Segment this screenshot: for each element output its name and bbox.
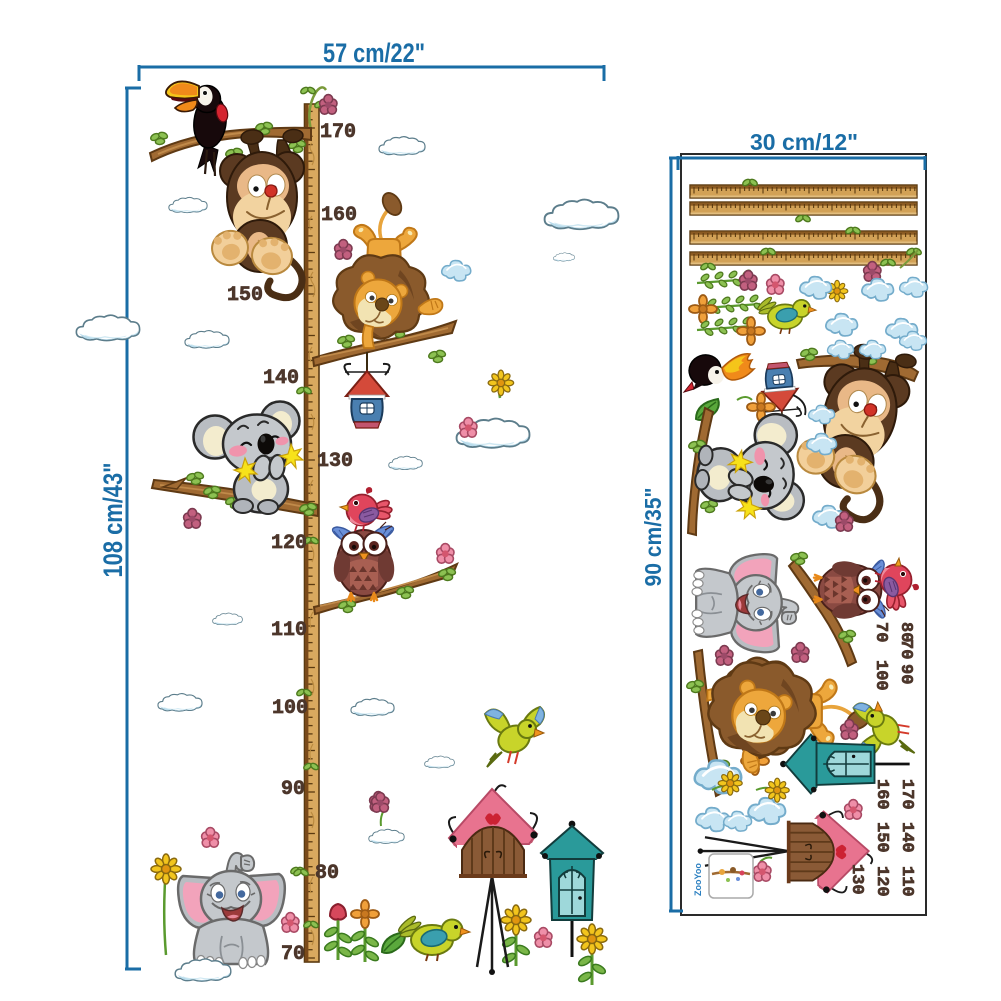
svg-text:120: 120 (872, 866, 891, 897)
svg-text:150: 150 (872, 822, 891, 853)
svg-text:130: 130 (317, 450, 353, 473)
svg-text:120: 120 (271, 532, 307, 555)
svg-text:110: 110 (897, 866, 916, 897)
svg-text:140: 140 (263, 367, 299, 390)
svg-text:ZooYoo: ZooYoo (693, 863, 703, 896)
svg-text:100: 100 (871, 660, 890, 691)
svg-text:80: 80 (315, 862, 339, 885)
svg-text:100: 100 (272, 697, 308, 720)
svg-text:150: 150 (227, 284, 263, 307)
svg-text:140: 140 (897, 822, 916, 853)
svg-text:70: 70 (871, 622, 890, 642)
svg-text:110: 110 (271, 619, 307, 642)
svg-text:90 cm/35": 90 cm/35" (640, 488, 666, 587)
svg-text:170: 170 (320, 121, 356, 144)
svg-text:90: 90 (281, 778, 305, 801)
svg-text:57 cm/22": 57 cm/22" (323, 38, 425, 68)
svg-text:30 cm/12": 30 cm/12" (750, 129, 858, 155)
svg-text:160: 160 (321, 204, 357, 227)
svg-text:70: 70 (281, 943, 305, 966)
svg-text:90: 90 (896, 664, 915, 684)
svg-text:170: 170 (897, 779, 916, 810)
svg-text:130: 130 (847, 864, 866, 895)
svg-text:70: 70 (896, 639, 915, 659)
svg-text:108 cm/43": 108 cm/43" (98, 463, 128, 578)
svg-text:160: 160 (872, 779, 891, 810)
